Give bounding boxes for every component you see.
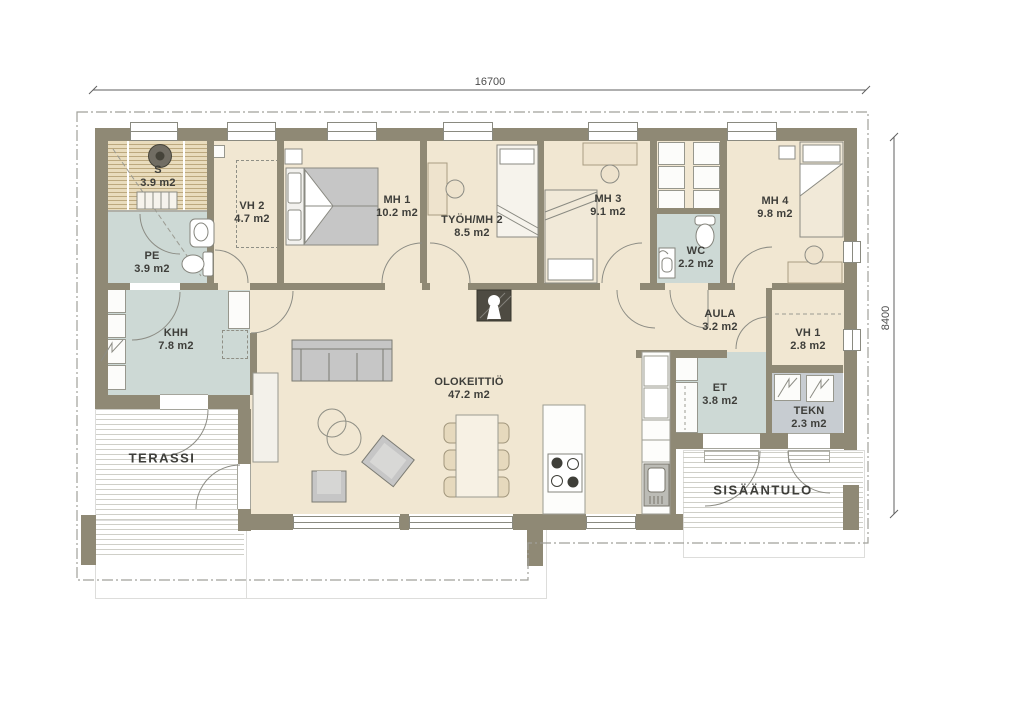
wall bbox=[95, 283, 130, 290]
wall bbox=[657, 208, 720, 214]
room-label-tyoh-mh2: TYÖH/MH 28.5 m2 bbox=[441, 214, 503, 240]
wall bbox=[772, 283, 845, 290]
room-label-s: S3.9 m2 bbox=[140, 164, 175, 190]
entrance-step bbox=[704, 450, 759, 463]
room-label-olokeittio: OLOKEITTIÖ47.2 m2 bbox=[434, 376, 503, 402]
door-et-entrance bbox=[703, 433, 760, 449]
wall bbox=[772, 365, 843, 373]
tekn-appliance bbox=[806, 375, 834, 402]
wardrobe bbox=[658, 190, 685, 209]
wardrobe bbox=[658, 142, 685, 165]
wall bbox=[250, 283, 257, 290]
wall bbox=[830, 433, 857, 449]
wall bbox=[537, 140, 544, 283]
room-label-mh3: MH 39.1 m2 bbox=[590, 193, 625, 219]
window bbox=[843, 329, 861, 351]
wall bbox=[95, 395, 160, 409]
wall bbox=[844, 128, 857, 450]
tekn-appliance bbox=[774, 374, 801, 401]
wall bbox=[468, 283, 600, 290]
room-label-wc: WC2.2 m2 bbox=[678, 245, 713, 271]
khh-counter bbox=[228, 291, 250, 329]
wall bbox=[720, 140, 727, 283]
window bbox=[588, 122, 638, 141]
wall-pillar bbox=[527, 530, 543, 566]
window bbox=[727, 122, 777, 141]
label-terassi: TERASSI bbox=[129, 452, 196, 465]
wall bbox=[422, 283, 430, 290]
wall bbox=[238, 514, 293, 530]
room-label-mh1: MH 110.2 m2 bbox=[376, 194, 418, 220]
wall bbox=[207, 140, 214, 283]
window bbox=[227, 122, 276, 141]
window bbox=[327, 122, 377, 141]
wardrobe bbox=[693, 166, 720, 189]
terrace-post bbox=[81, 515, 96, 565]
wall bbox=[708, 283, 735, 290]
sauna-pe-divider bbox=[107, 210, 213, 212]
wall bbox=[668, 350, 676, 514]
room-label-aula: AULA3.2 m2 bbox=[702, 308, 737, 334]
wall bbox=[250, 333, 257, 395]
room-label-vh1: VH 12.8 m2 bbox=[790, 327, 825, 353]
wall bbox=[513, 514, 586, 530]
wall bbox=[277, 140, 284, 283]
wall bbox=[238, 409, 251, 465]
wall bbox=[650, 140, 657, 283]
door-khh-terrace bbox=[160, 394, 208, 410]
door-living-terrace bbox=[237, 464, 251, 509]
room-label-et: ET3.8 m2 bbox=[702, 382, 737, 408]
dimension-right-value: 8400 bbox=[880, 306, 892, 330]
window bbox=[843, 241, 861, 263]
wall bbox=[766, 288, 772, 433]
window bbox=[293, 516, 400, 529]
floor-plan: S3.9 m2 PE3.9 m2 VH 24.7 m2 MH 110.2 m2 … bbox=[0, 0, 1024, 706]
window bbox=[443, 122, 493, 141]
wardrobe bbox=[693, 142, 720, 165]
wall bbox=[636, 350, 727, 358]
wall bbox=[640, 283, 665, 290]
wardrobe bbox=[658, 166, 685, 189]
wall bbox=[420, 140, 427, 283]
dimension-top-value: 16700 bbox=[475, 76, 506, 88]
wall bbox=[257, 283, 385, 290]
room-label-tekn: TEKN2.3 m2 bbox=[791, 405, 826, 431]
sauna-bench-gap bbox=[183, 140, 185, 212]
room-label-pe: PE3.9 m2 bbox=[134, 250, 169, 276]
room-label-mh4: MH 49.8 m2 bbox=[757, 195, 792, 221]
room-label-vh2: VH 24.7 m2 bbox=[234, 200, 269, 226]
floor-tyoh bbox=[426, 140, 538, 283]
label-sisaantulo: SISÄÄNTULO bbox=[713, 484, 813, 497]
wall bbox=[760, 433, 788, 449]
window bbox=[409, 516, 513, 529]
window bbox=[130, 122, 178, 141]
wall bbox=[95, 128, 108, 409]
window bbox=[586, 516, 636, 529]
sauna-bench-gap bbox=[127, 140, 129, 212]
khh-ironing-board bbox=[222, 330, 248, 359]
wall bbox=[636, 514, 683, 530]
wall bbox=[180, 283, 218, 290]
wardrobe bbox=[693, 190, 720, 209]
door-tekn-entrance bbox=[788, 433, 830, 449]
wall-window-mullion bbox=[400, 514, 409, 530]
terrace-decking bbox=[96, 394, 244, 556]
entrance-step bbox=[788, 450, 830, 463]
wall bbox=[208, 395, 250, 409]
room-label-khh: KHH7.8 m2 bbox=[158, 327, 193, 353]
porch-pillar bbox=[843, 485, 859, 530]
